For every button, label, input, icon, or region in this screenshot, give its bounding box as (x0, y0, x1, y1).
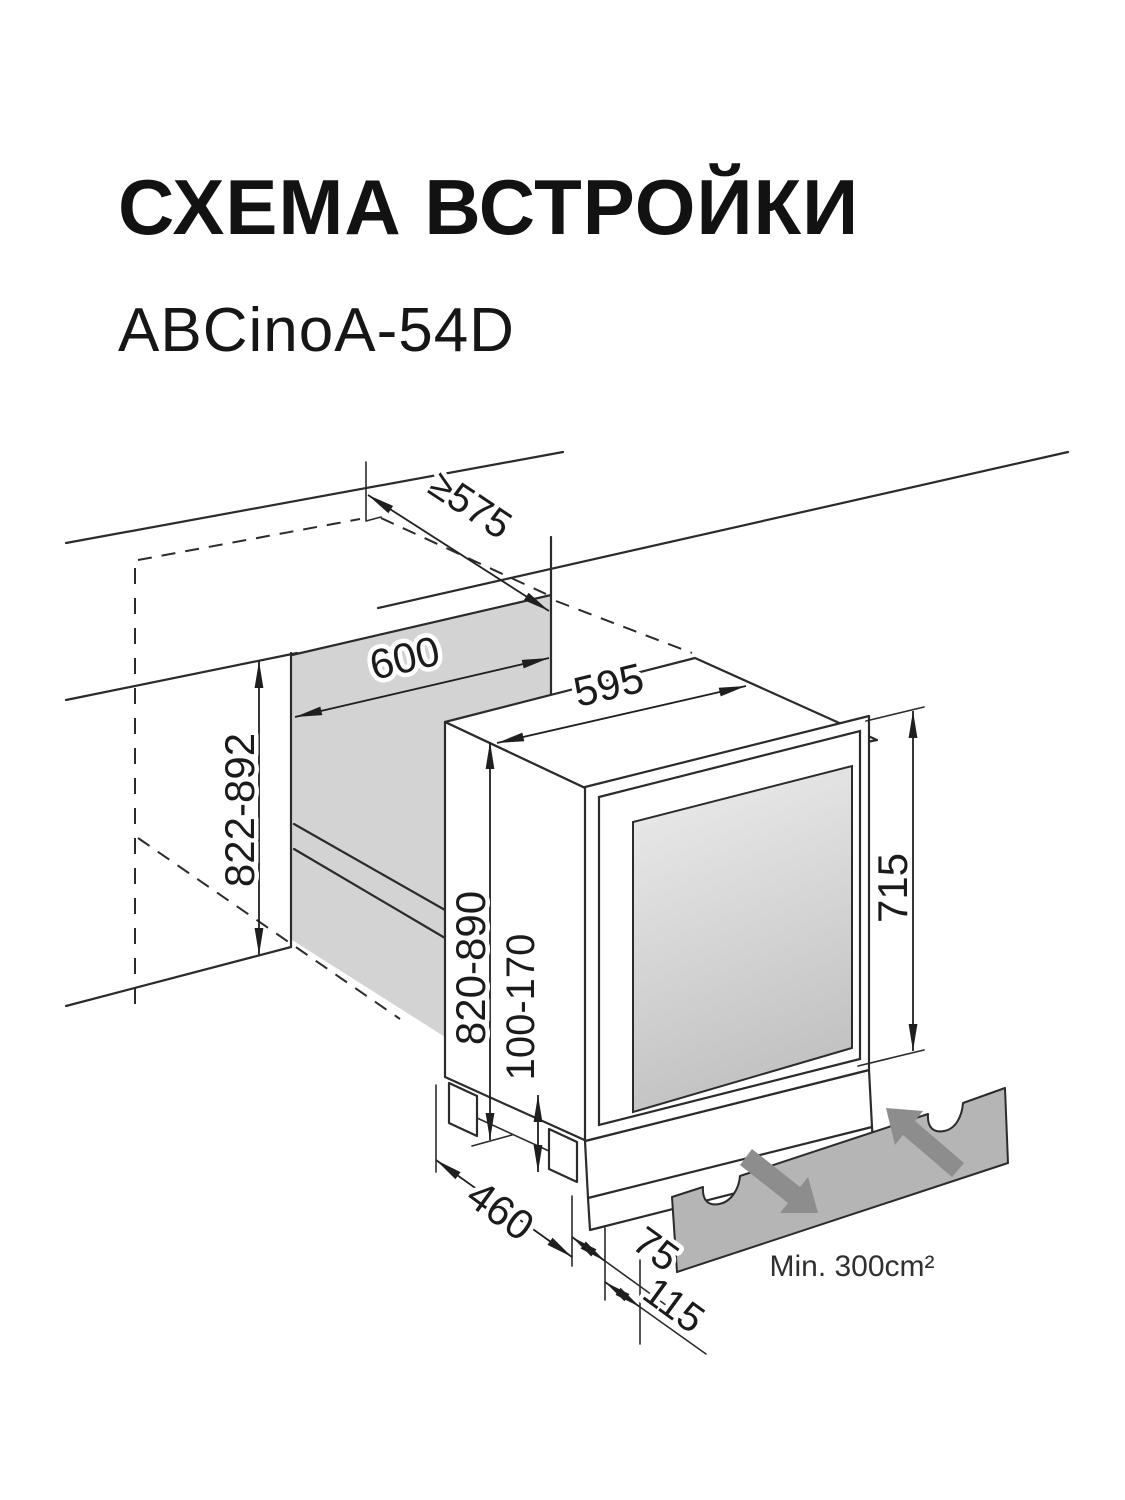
plinth-offset-label: 115 (635, 1269, 712, 1342)
installation-scheme-page: СХЕМА ВСТРОЙКИ ABCinoA-54D (0, 0, 1125, 1500)
floor-edge (66, 947, 291, 1006)
appliance-foot-front (449, 1083, 477, 1136)
door-height-label: 715 (869, 853, 916, 923)
base-depth-label: 460 (458, 1171, 542, 1250)
installation-diagram: Min. 300cm² ≥575 600 595 822-892 820-890 (0, 0, 1125, 1500)
niche-depth-label: ≥575 (421, 462, 519, 548)
depth-reference-tick (366, 462, 381, 521)
appliance-height-label: 820-890 (447, 891, 494, 1045)
plinth-height-label: 100-170 (499, 934, 543, 1081)
door-offset-dim-line (572, 1237, 605, 1261)
floor-ref (472, 1135, 512, 1146)
worktop-left-front-edge (66, 653, 297, 700)
offset-refs (572, 1196, 640, 1344)
niche-hidden-back-edge (138, 519, 360, 560)
niche-hidden-top-edge-right (556, 601, 692, 653)
niche-height-label: 822-892 (216, 733, 263, 887)
vent-area-label: Min. 300cm² (769, 1250, 934, 1283)
appliance-foot-rear (549, 1129, 577, 1182)
